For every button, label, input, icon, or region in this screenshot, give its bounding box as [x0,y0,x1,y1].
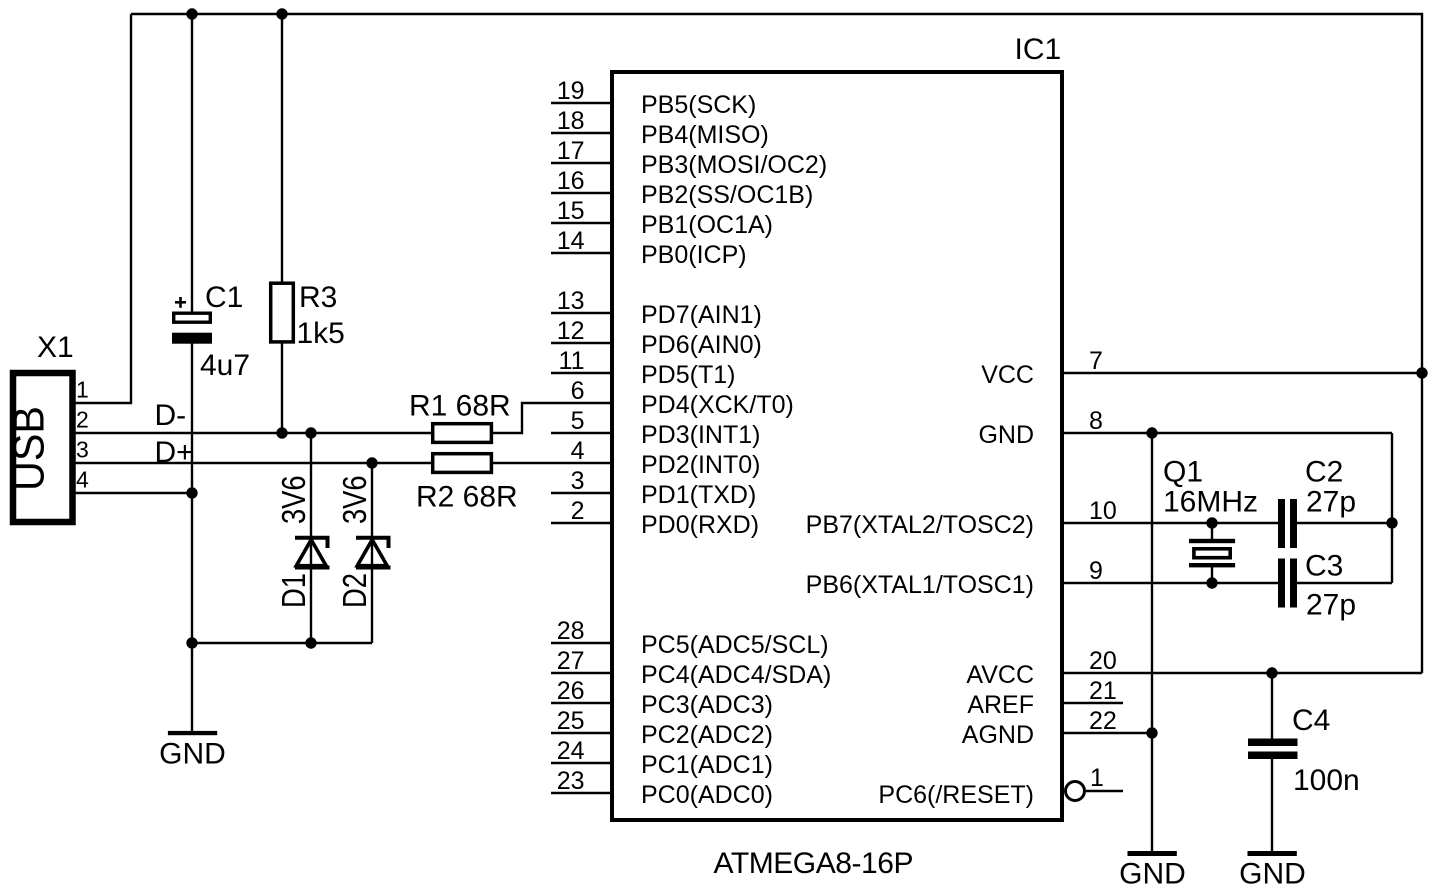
svg-text:3: 3 [76,437,89,463]
svg-text:PB6(XTAL1/TOSC1): PB6(XTAL1/TOSC1) [806,571,1034,599]
svg-text:10: 10 [1089,497,1117,525]
svg-text:18: 18 [557,107,585,135]
svg-text:D-: D- [155,399,187,432]
svg-text:5: 5 [571,407,585,435]
svg-text:15: 15 [557,197,585,225]
svg-text:PD2(INT0): PD2(INT0) [641,451,760,479]
svg-text:PC6(/RESET): PC6(/RESET) [878,781,1034,809]
svg-text:PC3(ADC3): PC3(ADC3) [641,691,773,719]
svg-text:PD5(T1): PD5(T1) [641,361,735,389]
svg-text:4u7: 4u7 [200,349,250,382]
svg-text:C4: C4 [1292,704,1330,737]
svg-text:21: 21 [1089,677,1117,705]
svg-text:3V6: 3V6 [275,476,312,525]
svg-text:PC1(ADC1): PC1(ADC1) [641,751,773,779]
svg-text:20: 20 [1089,647,1117,675]
svg-text:2: 2 [571,497,585,525]
svg-text:PB5(SCK): PB5(SCK) [641,91,756,119]
svg-text:PD0(RXD): PD0(RXD) [641,511,759,539]
svg-text:GND: GND [159,738,226,771]
svg-text:C3: C3 [1305,550,1343,583]
svg-text:27p: 27p [1306,589,1356,622]
svg-text:R3: R3 [299,281,337,314]
svg-text:PC2(ADC2): PC2(ADC2) [641,721,773,749]
svg-text:C1: C1 [205,281,243,314]
svg-text:100n: 100n [1293,764,1360,797]
svg-text:D2: D2 [336,573,373,608]
svg-text:IC1: IC1 [1015,33,1062,66]
svg-text:9: 9 [1089,557,1103,585]
svg-text:2: 2 [76,407,89,433]
svg-text:PD7(AIN1): PD7(AIN1) [641,301,762,329]
svg-text:4: 4 [571,437,585,465]
svg-text:1: 1 [76,377,89,403]
svg-text:PC5(ADC5/SCL): PC5(ADC5/SCL) [641,631,829,659]
svg-text:PC4(ADC4/SDA): PC4(ADC4/SDA) [641,661,831,689]
svg-text:PB2(SS/OC1B): PB2(SS/OC1B) [641,181,813,209]
svg-text:GND: GND [1239,858,1306,891]
svg-text:27: 27 [557,647,585,675]
svg-text:8: 8 [1089,407,1103,435]
svg-text:PD3(INT1): PD3(INT1) [641,421,760,449]
svg-text:19: 19 [557,77,585,105]
svg-text:16: 16 [557,167,585,195]
svg-text:C2: C2 [1305,456,1343,489]
svg-text:25: 25 [557,707,585,735]
svg-text:X1: X1 [37,331,74,364]
svg-text:11: 11 [559,347,585,375]
svg-text:PD6(AIN0): PD6(AIN0) [641,331,762,359]
svg-text:PD1(TXD): PD1(TXD) [641,481,756,509]
svg-text:1: 1 [1090,764,1104,792]
svg-text:AREF: AREF [967,691,1034,719]
svg-text:R1 68R: R1 68R [409,390,511,423]
svg-text:1k5: 1k5 [297,317,345,350]
svg-text:6: 6 [571,377,585,405]
svg-text:7: 7 [1089,347,1103,375]
svg-text:16MHz: 16MHz [1163,486,1258,519]
svg-text:PD4(XCK/T0): PD4(XCK/T0) [641,391,794,419]
svg-text:PB4(MISO): PB4(MISO) [641,121,769,149]
svg-text:24: 24 [557,737,585,765]
svg-text:R2 68R: R2 68R [416,481,518,514]
svg-text:AGND: AGND [962,721,1034,749]
svg-text:GND: GND [978,421,1034,449]
svg-text:23: 23 [557,767,585,795]
svg-text:17: 17 [557,137,585,165]
svg-text:4: 4 [76,467,89,493]
svg-text:PC0(ADC0): PC0(ADC0) [641,781,773,809]
svg-text:26: 26 [557,677,585,705]
svg-text:3: 3 [571,467,585,495]
svg-text:D+: D+ [155,436,194,469]
svg-text:AVCC: AVCC [966,661,1034,689]
svg-text:28: 28 [557,617,585,645]
svg-text:14: 14 [557,227,585,255]
svg-text:PB1(OC1A): PB1(OC1A) [641,211,773,239]
svg-text:GND: GND [1119,858,1186,891]
svg-text:USB: USB [5,406,54,491]
svg-text:ATMEGA8-16P: ATMEGA8-16P [714,847,914,880]
svg-text:Q1: Q1 [1163,456,1203,489]
svg-text:22: 22 [1089,707,1117,735]
svg-text:PB3(MOSI/OC2): PB3(MOSI/OC2) [641,151,827,179]
svg-text:13: 13 [557,287,585,315]
svg-text:3V6: 3V6 [336,476,373,525]
svg-text:27p: 27p [1306,486,1356,519]
svg-text:PB0(ICP): PB0(ICP) [641,241,747,269]
svg-text:D1: D1 [275,573,312,608]
svg-text:PB7(XTAL2/TOSC2): PB7(XTAL2/TOSC2) [806,511,1034,539]
svg-text:VCC: VCC [981,361,1034,389]
svg-text:12: 12 [557,317,585,345]
